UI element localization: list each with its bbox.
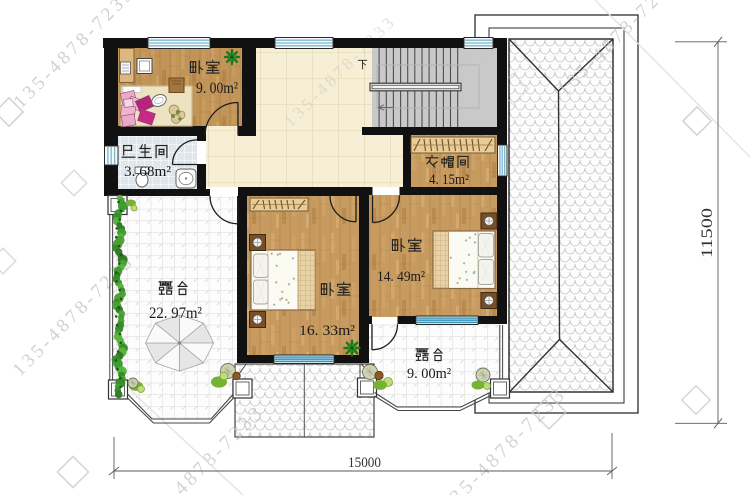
svg-text:3. 68m²: 3. 68m² bbox=[124, 164, 172, 180]
svg-text:22. 97m²: 22. 97m² bbox=[149, 305, 202, 322]
svg-text:9. 00m²: 9. 00m² bbox=[407, 366, 451, 382]
svg-text:4. 15m²: 4. 15m² bbox=[429, 172, 470, 188]
svg-text:9. 00m²: 9. 00m² bbox=[196, 80, 238, 97]
svg-text:15000: 15000 bbox=[348, 455, 381, 471]
svg-text:14. 49m²: 14. 49m² bbox=[377, 269, 425, 285]
svg-text:16. 33m²: 16. 33m² bbox=[299, 323, 356, 339]
svg-text:11500: 11500 bbox=[699, 208, 716, 258]
